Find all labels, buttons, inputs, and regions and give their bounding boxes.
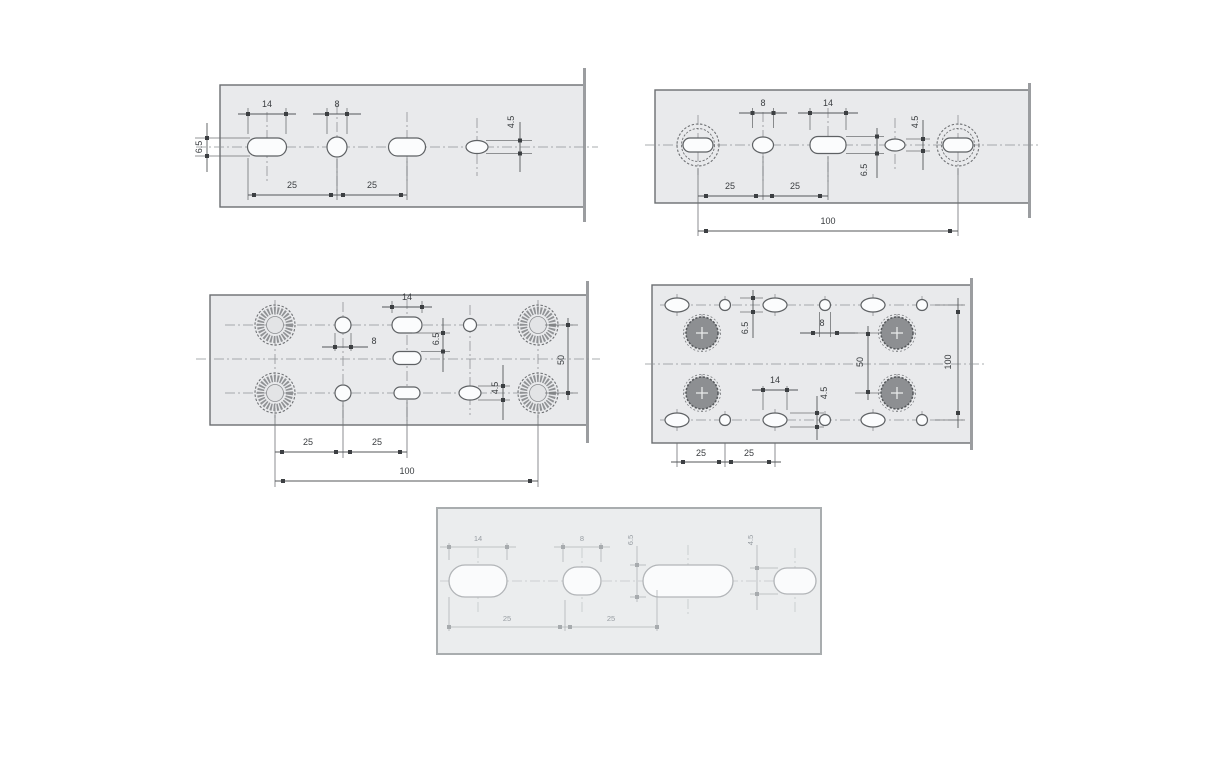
dim-label-hole-width: 8 — [760, 98, 765, 108]
slot-hole — [392, 317, 422, 333]
dim-label-slot-width: 14 — [770, 375, 780, 385]
drawing-plate-four-row: 6.5 8 50 14 4.5 100 — [645, 278, 985, 467]
dim-label-oval-height: 4.5 — [506, 116, 516, 129]
slot-hole — [393, 352, 421, 365]
dim-label-pitch1: 25 — [287, 180, 297, 190]
round-hole — [464, 319, 477, 332]
dim-label-hole-width: 8 — [334, 99, 339, 109]
dim-label-row-spacing: 50 — [556, 355, 566, 365]
slot-hole — [394, 387, 420, 399]
drawing-strip-single-row-a: 14 8 4.5 6.5 25 25 — [194, 68, 598, 222]
oval-hole — [459, 386, 481, 400]
drawing-plate-two-row: 14 8 6.5 4.5 50 — [196, 281, 600, 487]
slot-hole — [563, 567, 601, 595]
dim-label-slot-width: 14 — [474, 534, 482, 543]
round-hole — [335, 385, 351, 401]
dim-label-pitch2: 25 — [372, 437, 382, 447]
dim-label-slot-height: 6.5 — [431, 333, 441, 346]
round-hole — [917, 415, 928, 426]
dim-label-slot-width: 14 — [823, 98, 833, 108]
oval-hole — [763, 413, 787, 427]
dim-label-row-spacing: 50 — [855, 357, 865, 367]
drawing-strip-faint: 14 8 6.5 4.5 25 25 — [437, 508, 821, 654]
dim-overall-lines — [275, 415, 538, 487]
oval-hole — [861, 413, 885, 427]
dim-label-overall-height: 100 — [943, 354, 953, 369]
oval-hole — [466, 141, 488, 154]
dim-label-slot-width: 14 — [402, 292, 412, 302]
technical-drawing-sheet: 14 8 4.5 6.5 25 25 — [0, 0, 1216, 775]
slot-hole — [810, 137, 846, 154]
dim-label-pitch1: 25 — [503, 614, 511, 623]
dim-label-hole-width: 8 — [580, 534, 584, 543]
slot-hole — [774, 568, 816, 594]
round-hole — [327, 137, 347, 157]
round-hole — [335, 317, 351, 333]
dim-label-overall: 100 — [820, 216, 835, 226]
dim-pitch-lines — [671, 443, 781, 467]
dim-label-oval-height: 4.5 — [819, 387, 829, 400]
slot-hole — [389, 138, 426, 156]
drawing-strip-single-row-b: 8 14 4.5 6.5 25 25 — [645, 83, 1040, 236]
slot-hole — [643, 565, 733, 597]
round-hole — [917, 300, 928, 311]
round-hole — [720, 415, 731, 426]
dim-label-pitch2: 25 — [744, 448, 754, 458]
oval-hole — [665, 298, 689, 312]
round-hole — [820, 415, 831, 426]
oval-hole — [753, 137, 774, 153]
dim-label-pitch2: 25 — [367, 180, 377, 190]
dim-label-pitch2: 25 — [607, 614, 615, 623]
dim-label-pitch1: 25 — [696, 448, 706, 458]
dim-label-slot-height: 6.5 — [859, 164, 869, 177]
oval-hole — [665, 413, 689, 427]
dim-label-overall: 100 — [399, 466, 414, 476]
drawings-canvas: 14 8 4.5 6.5 25 25 — [0, 0, 1216, 775]
dim-label-hole-width: 8 — [371, 336, 376, 346]
dim-label-oval-height: 4.5 — [490, 382, 500, 395]
oval-hole — [861, 298, 885, 312]
dim-label-pitch1: 25 — [303, 437, 313, 447]
dim-label-hole-width: 8 — [819, 318, 824, 328]
dim-label-slot-height: 6.5 — [626, 535, 635, 545]
round-hole — [720, 300, 731, 311]
dim-label-slot-height: 6.5 — [194, 141, 204, 154]
dim-label-slot-width: 14 — [262, 99, 272, 109]
oval-hole — [763, 298, 787, 312]
dim-label-oval-height: 4.5 — [746, 535, 755, 545]
dim-label-pitch2: 25 — [790, 181, 800, 191]
slot-hole — [248, 138, 287, 156]
round-hole — [820, 300, 831, 311]
slot-hole — [449, 565, 507, 597]
dim-label-oval-height: 4.5 — [910, 116, 920, 129]
oval-hole — [885, 139, 905, 151]
dim-label-slot-height: 6.5 — [740, 322, 750, 335]
dim-label-pitch1: 25 — [725, 181, 735, 191]
